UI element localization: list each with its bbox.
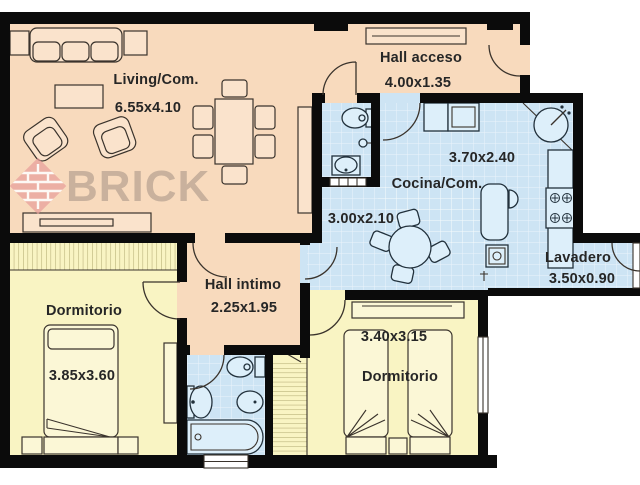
wall-toilette-right (371, 93, 380, 187)
dorm1-wardrobe-hatch (10, 243, 177, 270)
toilet-detail (359, 115, 365, 121)
door-gap-dorm2 (310, 290, 345, 300)
single-bed-right (408, 330, 452, 454)
sofa-cushion (91, 42, 118, 61)
coffee-table (55, 85, 103, 108)
dining-chair (222, 80, 247, 97)
bed-pillow (410, 437, 450, 454)
wardrobe-body (352, 302, 464, 318)
dorm1-dresser (164, 343, 177, 423)
living-shelf (298, 107, 312, 213)
wall-right-upper-a (520, 12, 530, 45)
floor-plan: BRICK (0, 0, 640, 480)
bidet (237, 391, 263, 413)
hall-acceso-label: Hall acceso (380, 50, 462, 66)
living-dims: 6.55x4.10 (115, 100, 181, 116)
side-table-left (10, 31, 29, 55)
sofa (30, 28, 122, 62)
wall-living-kitchen (312, 93, 322, 243)
bed-pillow (48, 329, 114, 349)
lavadero-label: Lavadero (545, 250, 611, 266)
window-frame (633, 243, 640, 288)
hall-acceso-furniture (366, 28, 466, 44)
wall-bathroom-left (177, 345, 187, 455)
media-console (23, 213, 151, 232)
tub-outer (187, 420, 263, 454)
wall-bathroom-right (265, 345, 273, 455)
door-gap-toilette (325, 93, 357, 103)
cocina-dims-main: 3.70x2.40 (449, 150, 515, 166)
wall-dorm2-top (345, 290, 488, 300)
wall-hallintimo-left-b (177, 318, 187, 345)
nightstand-left (22, 437, 42, 454)
dining-chair (193, 106, 213, 129)
living-label: Living/Com. (113, 72, 198, 88)
wall-dorm2-right-b (478, 413, 488, 455)
dorm2-wardrobe (352, 302, 464, 318)
single-bed-left (344, 330, 388, 454)
paper-holder (359, 139, 367, 147)
wall-living-bottom-a (0, 233, 182, 243)
wall-hall-kitchen (420, 93, 583, 103)
cocina-label: Cocina/Com. (392, 176, 483, 192)
door-gap-bath (190, 345, 224, 355)
wall-hallintimo-right-a (300, 233, 310, 245)
cocina-dims-left: 3.00x2.10 (328, 211, 394, 227)
wall-dorm2-right-a (478, 296, 488, 337)
brick-watermark: BRICK (8, 156, 210, 216)
hall-intimo-label: Hall intimo (205, 277, 281, 293)
bed-pillow (346, 437, 386, 454)
fridge (448, 103, 479, 131)
brick-watermark-text: BRICK (66, 162, 210, 211)
dining-chair (193, 135, 213, 158)
lavadero-dims: 3.50x0.90 (549, 271, 615, 287)
closet-hatch (273, 362, 307, 455)
door-gap-kitchen (380, 93, 420, 103)
bathtub (187, 420, 263, 454)
vent-toilette (330, 178, 366, 186)
bath-toilet-tank (255, 357, 265, 377)
washing-machine (486, 245, 508, 267)
door-gap-dorm1 (177, 282, 187, 318)
double-bed (44, 325, 118, 454)
side-table-right (124, 31, 147, 55)
dining-chair (255, 135, 275, 158)
wall-top-step2 (487, 24, 513, 30)
wall-lavadero-top (573, 233, 640, 243)
wall-kitchen-right (573, 93, 583, 243)
wall-top-step1 (314, 24, 348, 31)
faucet-knob (560, 105, 563, 108)
dormitorio1-label: Dormitorio (46, 303, 122, 319)
dining-chair (255, 106, 275, 129)
floor-plan-page: BRICK (0, 0, 640, 480)
stove (546, 188, 574, 228)
dormitorio1-dims: 3.85x3.60 (49, 368, 115, 384)
wall-top (0, 12, 530, 24)
window-dorm2 (478, 337, 488, 413)
bath-toilet-detail (244, 364, 250, 370)
kitchen-counter-top (424, 103, 448, 131)
kitchen-cart (481, 184, 508, 240)
nightstand-right (118, 437, 138, 454)
dorm2-nightstand (389, 438, 407, 454)
kitchen-round-table (389, 226, 431, 268)
wall-lavadero-bottom (488, 288, 640, 296)
dining-chair (222, 166, 247, 184)
door-gap-entrance (520, 45, 530, 75)
faucet-knob (567, 111, 570, 114)
dormitorio2-dims: 3.40x3.15 (361, 329, 427, 345)
console-slot (40, 219, 113, 226)
sofa-cushion (62, 42, 89, 61)
toilette-sink-tap (345, 169, 348, 172)
window-bathroom (204, 455, 248, 468)
bed-foot (44, 437, 118, 454)
dining-table (215, 99, 253, 164)
wall-hallintimo-left-a (177, 233, 187, 282)
dormitorio2-label: Dormitorio (362, 369, 438, 385)
window-lavadero (633, 243, 640, 288)
hall-intimo-dims: 2.25x1.95 (211, 300, 277, 316)
sofa-cushion (33, 42, 60, 61)
door-gap-living-hall (195, 233, 225, 243)
bath-sink-tap (191, 400, 195, 404)
hall-acceso-dims: 4.00x1.35 (385, 75, 451, 91)
bidet-tap (254, 401, 257, 404)
